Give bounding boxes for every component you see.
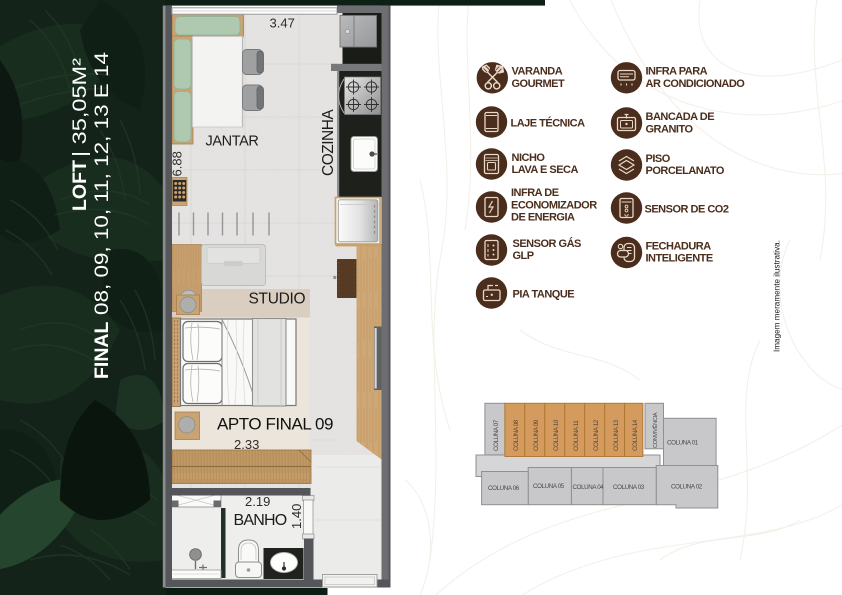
svg-text:AR CONDICIONADO: AR CONDICIONADO <box>646 78 746 90</box>
svg-text:LOFT: LOFT <box>69 160 91 211</box>
svg-text:FECHADURA: FECHADURA <box>646 240 712 252</box>
svg-text:PIA TANQUE: PIA TANQUE <box>513 288 575 300</box>
svg-text:COLUNA 13: COLUNA 13 <box>613 419 620 451</box>
svg-text:COLUNA 08: COLUNA 08 <box>513 419 520 451</box>
svg-text:BANHO: BANHO <box>234 512 287 529</box>
svg-text:GRANITO: GRANITO <box>646 123 694 135</box>
svg-text:PISO: PISO <box>646 153 671 165</box>
svg-text:JANTAR: JANTAR <box>206 134 259 150</box>
svg-text:STUDIO: STUDIO <box>249 291 306 308</box>
svg-text:Imagem meramente ilustrativa.: Imagem meramente ilustrativa. <box>773 240 782 352</box>
svg-text:COLUNA 06: COLUNA 06 <box>488 485 520 492</box>
svg-text:COLUNA 14: COLUNA 14 <box>632 419 639 451</box>
svg-text:FINAL: FINAL <box>91 322 113 379</box>
svg-text:COLUNA 04: COLUNA 04 <box>573 484 605 491</box>
svg-text:INFRA DE: INFRA DE <box>511 187 559 199</box>
svg-text:DE ENERGIA: DE ENERGIA <box>511 211 575 223</box>
svg-text:2.19: 2.19 <box>245 494 270 509</box>
svg-text:COLUNA 10: COLUNA 10 <box>553 419 560 451</box>
svg-text:COLUNA 03: COLUNA 03 <box>613 484 645 491</box>
svg-text:INTELIGENTE: INTELIGENTE <box>646 253 713 265</box>
svg-text:COLUNA 07: COLUNA 07 <box>493 419 500 451</box>
svg-text:PORCELANATO: PORCELANATO <box>646 165 725 177</box>
svg-text:SENSOR GÁS: SENSOR GÁS <box>513 237 582 250</box>
svg-text:BANCADA DE: BANCADA DE <box>646 111 715 123</box>
svg-text:SENSOR DE CO2: SENSOR DE CO2 <box>645 203 729 215</box>
svg-text:3.47: 3.47 <box>270 16 295 31</box>
svg-text:COZINHA: COZINHA <box>320 109 337 176</box>
svg-text:08, 09, 10, 11, 12, 13 E 14: 08, 09, 10, 11, 12, 13 E 14 <box>91 52 113 315</box>
svg-text:COLUNA 01: COLUNA 01 <box>667 440 699 447</box>
svg-text:NICHO: NICHO <box>512 152 546 164</box>
svg-text:COLUNA 02: COLUNA 02 <box>671 484 703 491</box>
svg-text:GLP: GLP <box>513 250 534 262</box>
svg-text:| 35,05M²: | 35,05M² <box>69 57 91 157</box>
svg-text:COLUNA 09: COLUNA 09 <box>533 419 540 451</box>
svg-text:GOURMET: GOURMET <box>512 78 566 90</box>
svg-text:APTO FINAL 09: APTO FINAL 09 <box>217 415 333 434</box>
svg-text:COLUNA 05: COLUNA 05 <box>533 483 565 490</box>
svg-text:1.40: 1.40 <box>289 504 304 529</box>
svg-text:ECONOMIZADOR: ECONOMIZADOR <box>511 200 597 212</box>
svg-text:INFRA PARA: INFRA PARA <box>646 66 708 78</box>
svg-text:VARANDA: VARANDA <box>512 66 563 78</box>
svg-text:LAJE TÉCNICA: LAJE TÉCNICA <box>511 116 586 129</box>
svg-text:COLUNA 11: COLUNA 11 <box>573 420 580 451</box>
svg-text:CONVIVÊNCIA: CONVIVÊNCIA <box>651 412 659 448</box>
svg-text:COLUNA 12: COLUNA 12 <box>593 419 600 451</box>
svg-text:LAVA E SECA: LAVA E SECA <box>512 164 579 176</box>
